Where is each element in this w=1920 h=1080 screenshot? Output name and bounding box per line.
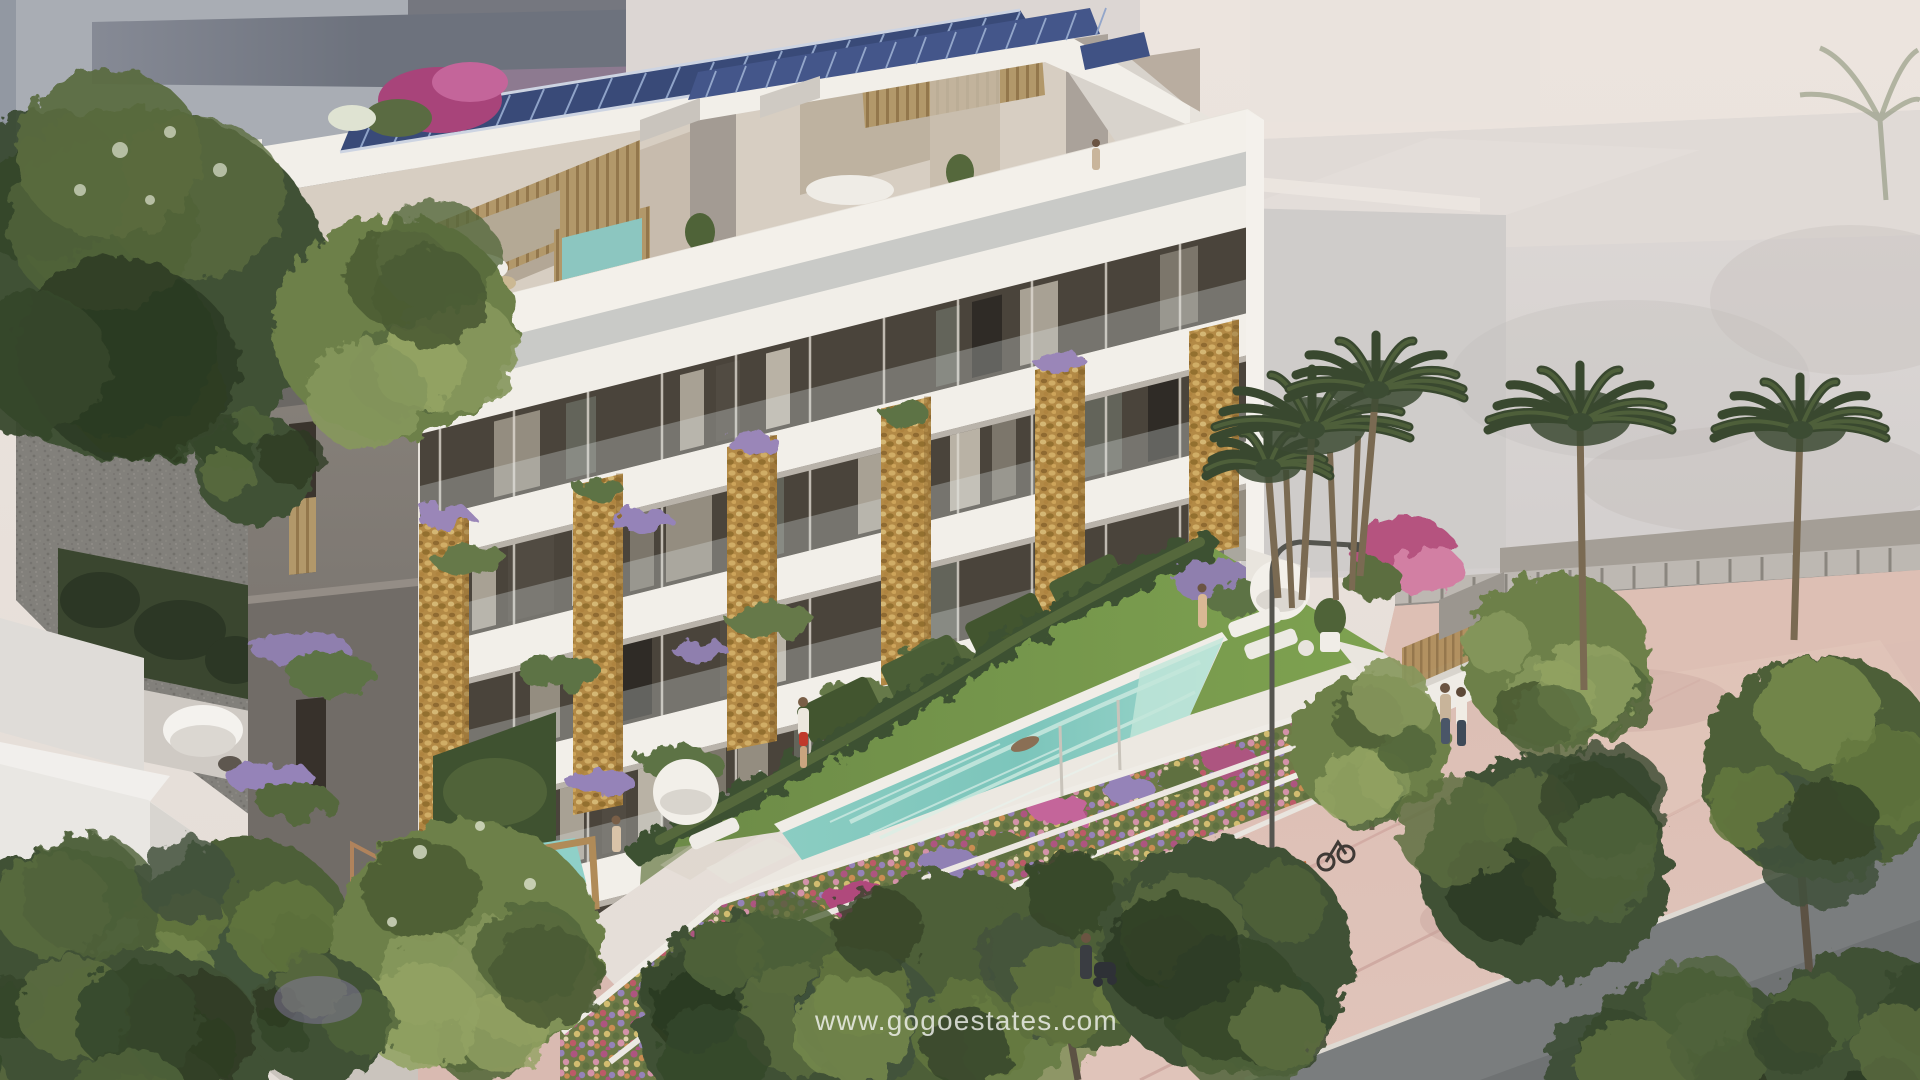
svg-text:www.gogoestates.com: www.gogoestates.com [814,1005,1118,1036]
